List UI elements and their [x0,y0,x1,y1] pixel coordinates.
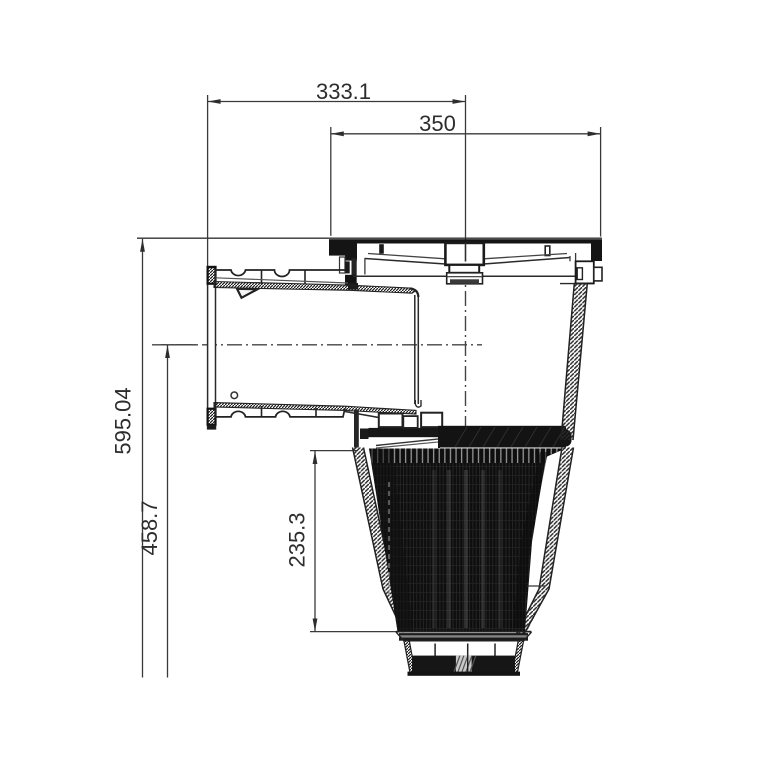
svg-text:333.1: 333.1 [316,79,371,104]
svg-text:350: 350 [419,111,456,136]
svg-text:595.04: 595.04 [111,387,136,454]
svg-text:458.7: 458.7 [137,500,162,555]
svg-text:235.3: 235.3 [285,512,310,567]
